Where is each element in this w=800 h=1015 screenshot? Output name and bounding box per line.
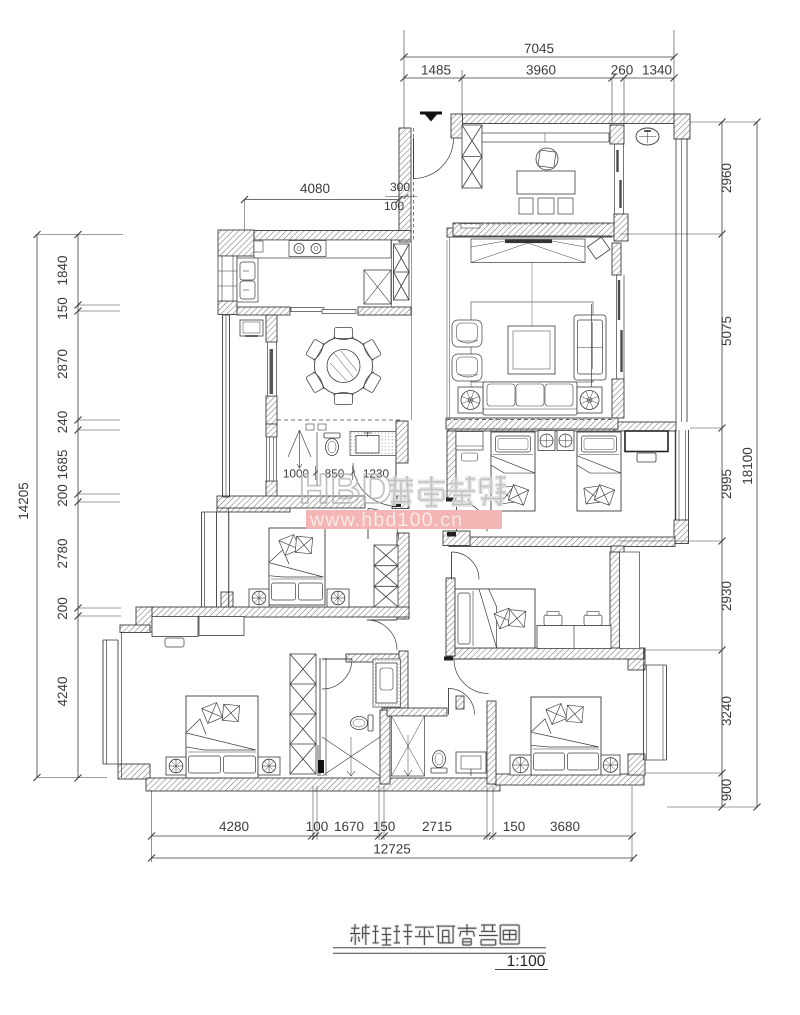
- svg-text:12725: 12725: [373, 842, 411, 857]
- svg-text:240: 240: [55, 411, 70, 434]
- svg-text:3240: 3240: [719, 696, 734, 726]
- svg-text:2780: 2780: [55, 538, 70, 568]
- svg-text:150: 150: [55, 297, 70, 320]
- svg-text:14205: 14205: [16, 482, 31, 520]
- svg-text:www.hbd100.cn: www.hbd100.cn: [309, 509, 463, 531]
- svg-text:4240: 4240: [55, 676, 70, 706]
- svg-text:100: 100: [306, 819, 329, 834]
- svg-text:2930: 2930: [719, 581, 734, 611]
- svg-text:900: 900: [719, 779, 734, 802]
- svg-text:HBD: HBD: [299, 465, 393, 512]
- svg-text:1:100: 1:100: [507, 953, 546, 970]
- svg-text:100: 100: [384, 199, 404, 213]
- svg-text:4280: 4280: [219, 819, 249, 834]
- svg-text:2995: 2995: [719, 469, 734, 499]
- svg-text:4080: 4080: [300, 181, 330, 196]
- svg-text:7045: 7045: [524, 41, 554, 56]
- svg-text:150: 150: [373, 819, 396, 834]
- svg-text:3680: 3680: [550, 819, 580, 834]
- svg-text:2870: 2870: [55, 349, 70, 379]
- svg-text:1840: 1840: [55, 255, 70, 285]
- svg-text:1485: 1485: [421, 63, 451, 78]
- svg-text:18100: 18100: [740, 447, 755, 485]
- svg-text:260: 260: [611, 63, 634, 78]
- svg-text:200: 200: [55, 484, 70, 507]
- svg-text:150: 150: [503, 819, 526, 834]
- svg-text:300: 300: [390, 180, 410, 194]
- svg-text:2715: 2715: [422, 819, 452, 834]
- svg-text:5075: 5075: [719, 316, 734, 346]
- svg-text:1685: 1685: [55, 449, 70, 479]
- svg-text:1670: 1670: [334, 819, 364, 834]
- svg-text:2960: 2960: [719, 163, 734, 193]
- svg-text:3960: 3960: [526, 63, 556, 78]
- svg-text:200: 200: [55, 597, 70, 620]
- svg-text:1340: 1340: [642, 63, 672, 78]
